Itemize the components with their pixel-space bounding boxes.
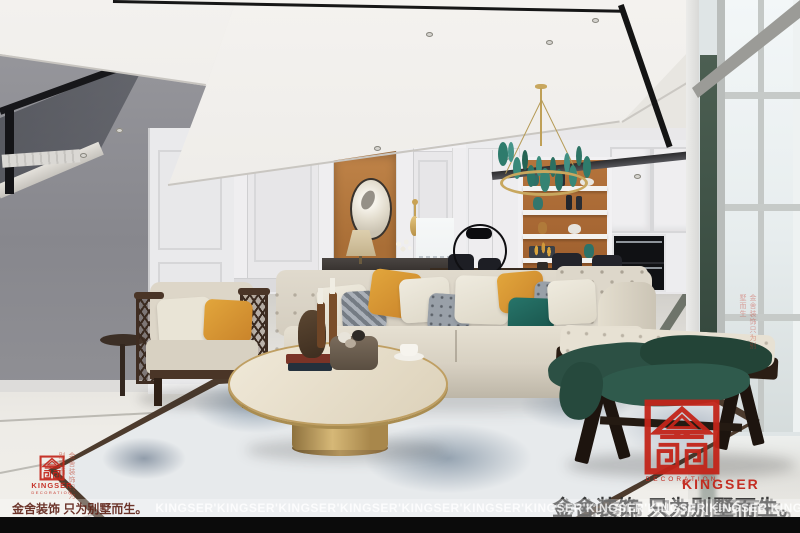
oven-handle	[616, 241, 662, 243]
window-transom	[725, 92, 800, 99]
white-candle	[330, 278, 335, 294]
kingser-seal-logo-large: KINGSER® DECORATION	[636, 398, 728, 484]
watermark-repeat-text: KINGSER'KINGSER'KINGSER'KINGSER'KINGSER'…	[155, 501, 800, 515]
downlight	[546, 40, 553, 45]
wainscot-panel	[254, 158, 312, 262]
decor-egg	[345, 339, 356, 348]
downlight	[374, 146, 381, 151]
teal-jar	[533, 197, 543, 210]
white-flowers	[392, 238, 414, 258]
ring-lamp-head	[466, 228, 492, 239]
dark-bottle	[566, 195, 572, 210]
vertical-slogan-watermark: 金舍装饰只为别墅而生	[56, 452, 76, 504]
watermark-strip: 金舍装饰 只为别墅而生。 KINGSER'KINGSER'KINGSER'KIN…	[0, 499, 800, 517]
side-table-leg	[120, 344, 125, 396]
chandelier-stem	[540, 88, 542, 146]
shelf	[523, 234, 607, 239]
bottom-letterbox-bar	[0, 517, 800, 533]
vertical-slogan-watermark: 金舍装饰只为别墅而生	[737, 294, 757, 352]
amber-vase	[538, 222, 547, 234]
wood-candlestick	[317, 302, 325, 348]
armchair-wood-armrest	[134, 292, 164, 299]
armchair-leg	[154, 378, 162, 406]
window-edge-pane	[793, 0, 800, 432]
registered-mark: ®	[682, 476, 689, 492]
armchair-orange-pillow	[203, 299, 253, 343]
kingser-seal-icon	[643, 398, 721, 476]
sofa-white-pillow	[547, 279, 597, 325]
stacked-book	[288, 363, 332, 371]
table-lamp-base	[359, 256, 362, 264]
shelf	[523, 210, 607, 215]
railing-post	[5, 110, 14, 194]
cabinet-puck-light	[634, 174, 641, 179]
dark-bottle	[576, 196, 582, 210]
watermark-slogan: 金舍装饰 只为别墅而生。	[12, 500, 147, 517]
window-transom	[725, 204, 800, 211]
chandelier-teal-glass-leaves	[498, 142, 508, 166]
white-dish	[568, 224, 581, 234]
downlight	[592, 18, 599, 23]
coffee-cup	[400, 344, 418, 356]
downlight	[426, 32, 433, 37]
armchair-wood-armrest	[238, 288, 270, 295]
chandelier-gold-ring	[500, 170, 588, 196]
downlight	[116, 128, 123, 133]
downlight	[80, 153, 87, 158]
white-candle	[318, 288, 323, 304]
living-room-rendering: KINGSER DECORATION 金舍装饰只为别墅而生 金舍装饰只为别墅而生…	[0, 0, 800, 533]
